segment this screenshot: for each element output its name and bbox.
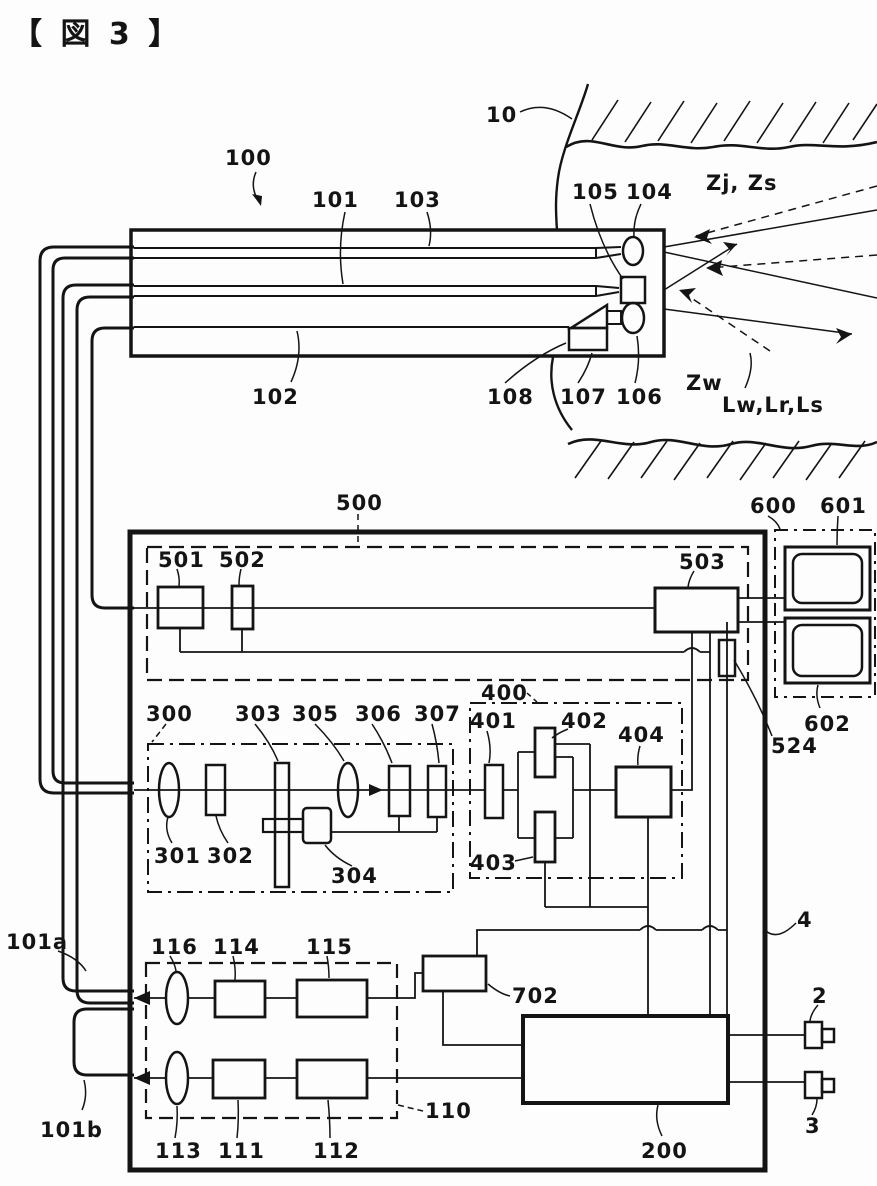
ref-label-3: 3 xyxy=(805,1114,821,1138)
ref-label-103: 103 xyxy=(394,188,441,212)
ref-label-108: 108 xyxy=(487,385,534,409)
axis-arrow xyxy=(369,784,383,796)
block-200 xyxy=(523,1016,728,1103)
ref-label-501: 501 xyxy=(158,548,205,572)
tip-window-106 xyxy=(622,303,644,333)
body-wall-illustration xyxy=(551,84,877,480)
ref-label-114: 114 xyxy=(213,935,260,959)
ref-label-404: 404 xyxy=(618,723,665,747)
monitor-group-600 xyxy=(775,530,875,697)
unit-200-section xyxy=(423,926,834,1103)
block-403 xyxy=(535,812,555,862)
unit-110 xyxy=(134,963,523,1118)
block-702 xyxy=(423,956,486,991)
block-402 xyxy=(535,728,555,777)
ref-label-502: 502 xyxy=(219,548,266,572)
monitor-602 xyxy=(785,618,870,683)
ref-label-600: 600 xyxy=(750,494,797,518)
patent-figure-page: 【 図 3 】 xyxy=(0,0,877,1186)
prism-107 xyxy=(571,305,607,328)
block-404 xyxy=(616,767,671,817)
ref-label-zjzs: Zj, Zs xyxy=(706,171,777,195)
ref-label-602: 602 xyxy=(804,712,851,736)
ref-label-500: 500 xyxy=(336,491,383,515)
ref-label-524: 524 xyxy=(771,734,818,758)
ref-label-10: 10 xyxy=(486,103,517,127)
ref-label-304: 304 xyxy=(331,864,378,888)
ref-label-403: 403 xyxy=(470,851,517,875)
ref-label-200: 200 xyxy=(641,1139,688,1163)
sensor-108 xyxy=(569,328,607,350)
connector-2 xyxy=(805,1022,822,1048)
ref-label-400: 400 xyxy=(481,681,528,705)
ref-label-110: 110 xyxy=(425,1099,472,1123)
block-114 xyxy=(215,981,265,1017)
block-115 xyxy=(297,980,367,1017)
ref-label-401: 401 xyxy=(470,709,517,733)
ref-label-106: 106 xyxy=(616,385,663,409)
ref-label-105: 105 xyxy=(572,180,619,204)
ref-label-101b: 101b xyxy=(40,1118,103,1142)
block-503 xyxy=(655,588,738,632)
ref-label-lwlrls: Lw,Lr,Ls xyxy=(722,393,824,417)
ref-label-307: 307 xyxy=(414,702,461,726)
motor-304 xyxy=(303,808,331,843)
ref-label-302: 302 xyxy=(207,844,254,868)
block-112 xyxy=(297,1060,367,1098)
connector-3 xyxy=(805,1072,822,1098)
chopper-arm xyxy=(263,819,303,832)
ref-label-306: 306 xyxy=(355,702,402,726)
block-111 xyxy=(213,1060,265,1098)
lens-116 xyxy=(166,972,188,1024)
ref-label-2: 2 xyxy=(812,984,828,1008)
ref-label-101a: 101a xyxy=(6,930,68,954)
probe-assembly xyxy=(131,230,664,356)
block-401 xyxy=(485,765,503,818)
ref-label-300: 300 xyxy=(146,702,193,726)
ref-label-113: 113 xyxy=(155,1139,202,1163)
ref-label-112: 112 xyxy=(313,1139,360,1163)
ref-label-101: 101 xyxy=(312,188,359,212)
figure-title: 【 図 3 】 xyxy=(12,17,182,52)
patent-figure-canvas: 【 図 3 】 xyxy=(0,0,877,1186)
block-306 xyxy=(389,766,410,816)
ref-label-702: 702 xyxy=(512,984,559,1008)
ref-label-111: 111 xyxy=(218,1139,265,1163)
ref-label-303: 303 xyxy=(235,702,282,726)
ref-label-107: 107 xyxy=(560,385,607,409)
unit-300 xyxy=(134,744,485,892)
block-307 xyxy=(428,766,446,817)
ref-label-116: 116 xyxy=(151,935,198,959)
chopper-303 xyxy=(275,763,289,887)
ref-label-305: 305 xyxy=(292,702,339,726)
ref-label-102: 102 xyxy=(252,385,299,409)
ref-label-601: 601 xyxy=(820,494,867,518)
lens-113 xyxy=(166,1052,188,1104)
ref-label-104: 104 xyxy=(626,180,673,204)
ref-label-503: 503 xyxy=(679,550,726,574)
ref-label-4: 4 xyxy=(797,908,813,932)
leader-arrow-100 xyxy=(252,194,262,206)
ref-label-zw: Zw xyxy=(686,371,723,395)
tip-window-104 xyxy=(623,237,643,265)
ref-label-301: 301 xyxy=(154,844,201,868)
light-rays xyxy=(664,186,877,351)
tip-connector xyxy=(607,311,621,324)
ref-label-100: 100 xyxy=(225,146,272,170)
tip-element-105 xyxy=(621,277,645,303)
ref-label-402: 402 xyxy=(561,709,608,733)
ref-label-115: 115 xyxy=(306,935,353,959)
